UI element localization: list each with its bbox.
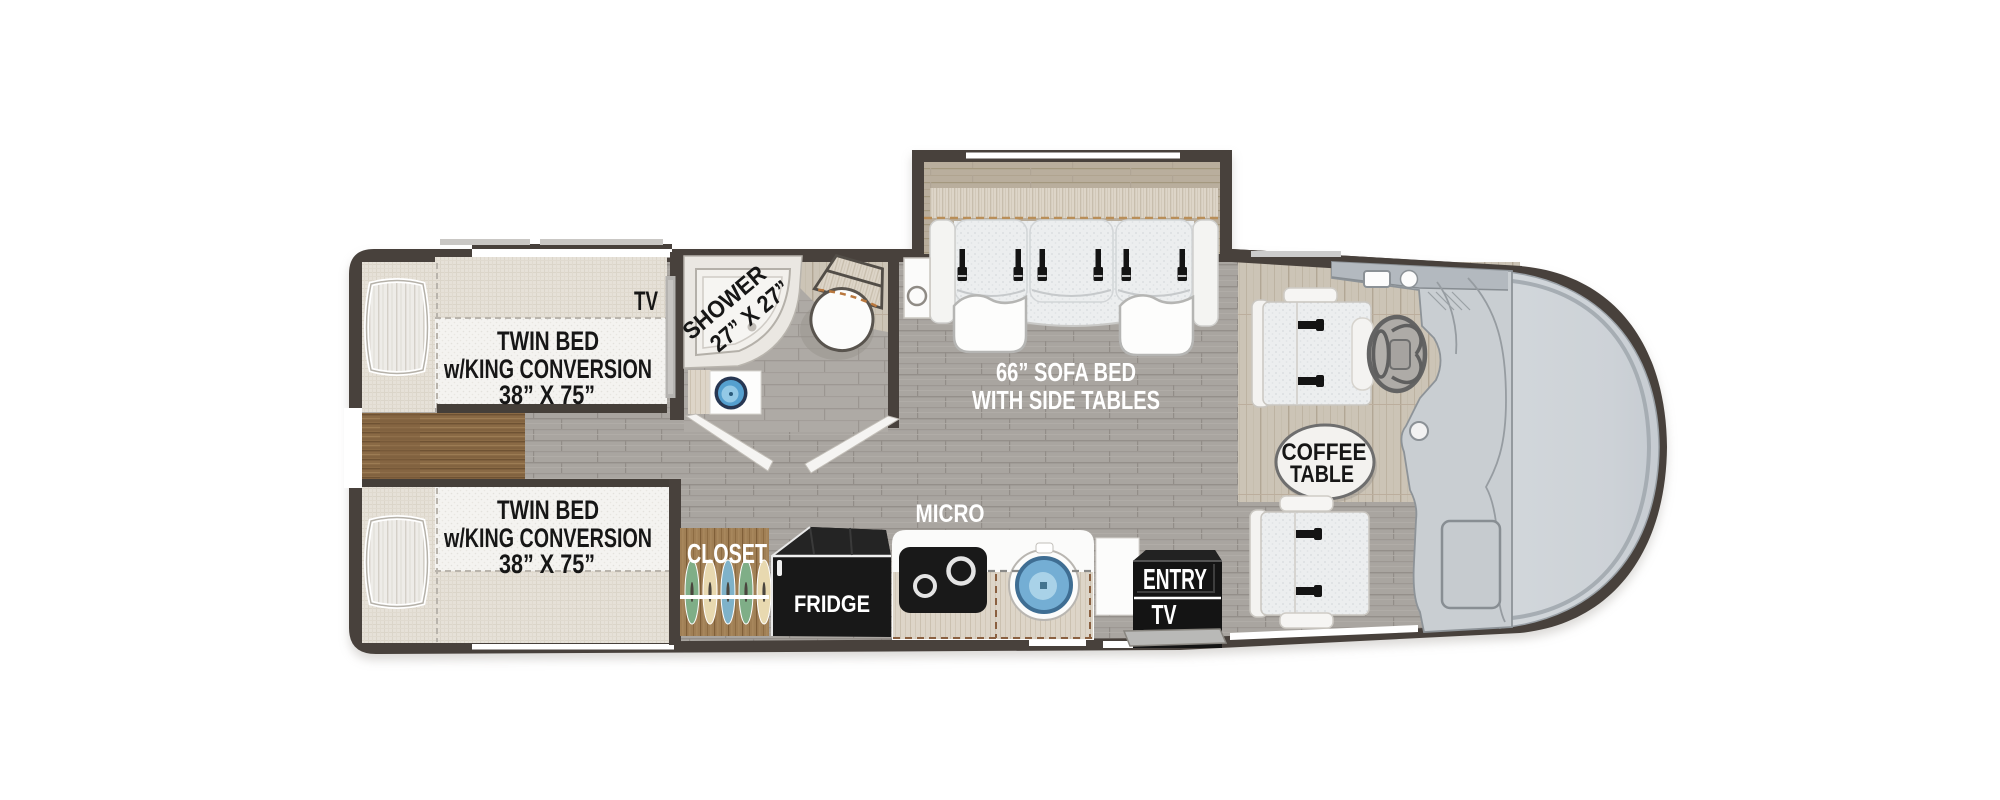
- svg-text:38” X 75”: 38” X 75”: [499, 549, 595, 579]
- svg-text:FRIDGE: FRIDGE: [794, 591, 870, 618]
- svg-text:MICRO: MICRO: [916, 500, 985, 528]
- svg-text:TABLE: TABLE: [1290, 461, 1354, 488]
- svg-text:WITH SIDE TABLES: WITH SIDE TABLES: [972, 385, 1160, 415]
- svg-text:TV: TV: [634, 286, 658, 316]
- svg-text:ENTRY: ENTRY: [1143, 564, 1207, 596]
- svg-text:TV: TV: [1152, 599, 1177, 630]
- svg-text:66” SOFA BED: 66” SOFA BED: [996, 357, 1136, 387]
- svg-text:38” X 75”: 38” X 75”: [499, 380, 595, 410]
- svg-text:TWIN BED: TWIN BED: [497, 495, 599, 525]
- svg-text:TWIN BED: TWIN BED: [497, 326, 599, 356]
- svg-text:CLOSET: CLOSET: [687, 538, 767, 569]
